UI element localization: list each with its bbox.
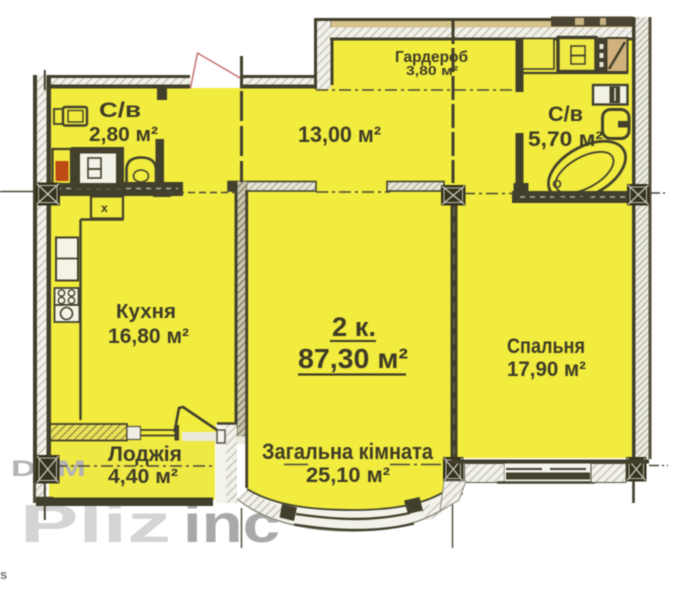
- svg-text:2 к.: 2 к.: [332, 312, 376, 342]
- svg-text:3,80 м²: 3,80 м²: [406, 63, 459, 78]
- svg-text:17,90 м²: 17,90 м²: [507, 358, 586, 381]
- svg-text:С/в: С/в: [548, 103, 583, 126]
- svg-text:16,80 м²: 16,80 м²: [108, 325, 189, 348]
- svg-text:13,00 м²: 13,00 м²: [298, 122, 381, 147]
- svg-text:x: x: [101, 201, 108, 215]
- svg-text:Кухня: Кухня: [116, 301, 176, 323]
- svg-text:Спальня: Спальня: [507, 335, 585, 358]
- svg-text:Загальна кімната: Загальна кімната: [262, 439, 434, 464]
- svg-text:2,80 м²: 2,80 м²: [89, 124, 158, 146]
- svg-text:С/в: С/в: [99, 99, 141, 122]
- svg-text:s: s: [0, 567, 7, 582]
- svg-text:5,70 м²: 5,70 м²: [528, 128, 603, 151]
- svg-text:87,30 м²: 87,30 м²: [298, 343, 408, 374]
- svg-text:Лоджія: Лоджія: [108, 443, 182, 466]
- svg-text:4,40 м²: 4,40 м²: [108, 466, 178, 488]
- svg-text:25,10 м²: 25,10 м²: [306, 464, 390, 487]
